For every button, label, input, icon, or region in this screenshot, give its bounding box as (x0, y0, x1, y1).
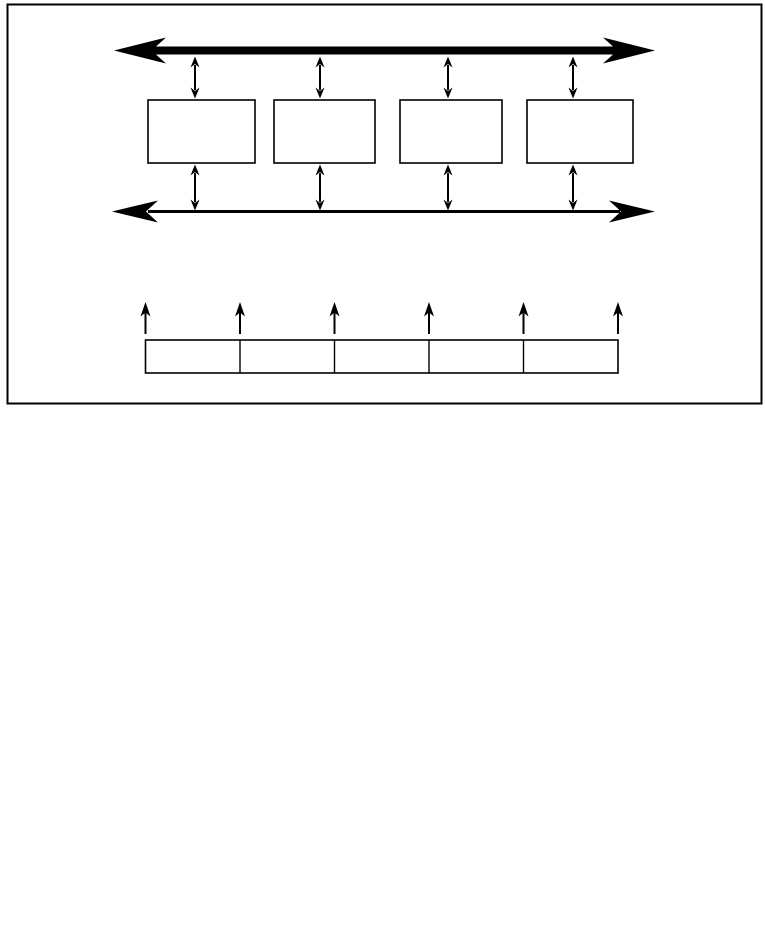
bus-architecture-diagram (0, 0, 765, 935)
up-arrow (519, 302, 529, 334)
cell-array (146, 340, 619, 373)
up-arrow (424, 302, 434, 334)
bidirectional-arrow (569, 165, 578, 211)
device-box (400, 100, 502, 163)
bidirectional-arrow (316, 165, 325, 211)
top-bus-links (191, 57, 578, 99)
pointer-arrows (141, 302, 624, 334)
page: { "colors": { "ink": "#000000", "backgro… (0, 0, 765, 935)
bottom-bus-links (191, 165, 578, 211)
bidirectional-arrow (569, 57, 578, 99)
bidirectional-arrow (191, 57, 200, 99)
bidirectional-arrow (444, 165, 453, 211)
up-arrow (141, 302, 151, 334)
bidirectional-arrow (191, 165, 200, 211)
figure-canvas (0, 0, 765, 935)
device-box (148, 100, 255, 163)
bidirectional-arrow (444, 57, 453, 99)
device-box (527, 100, 633, 163)
bidirectional-arrow (316, 57, 325, 99)
device-box (274, 100, 375, 163)
device-boxes (148, 100, 633, 163)
up-arrow (235, 302, 245, 334)
up-arrow (613, 302, 623, 334)
cell-array-outline (146, 340, 619, 373)
up-arrow (330, 302, 340, 334)
